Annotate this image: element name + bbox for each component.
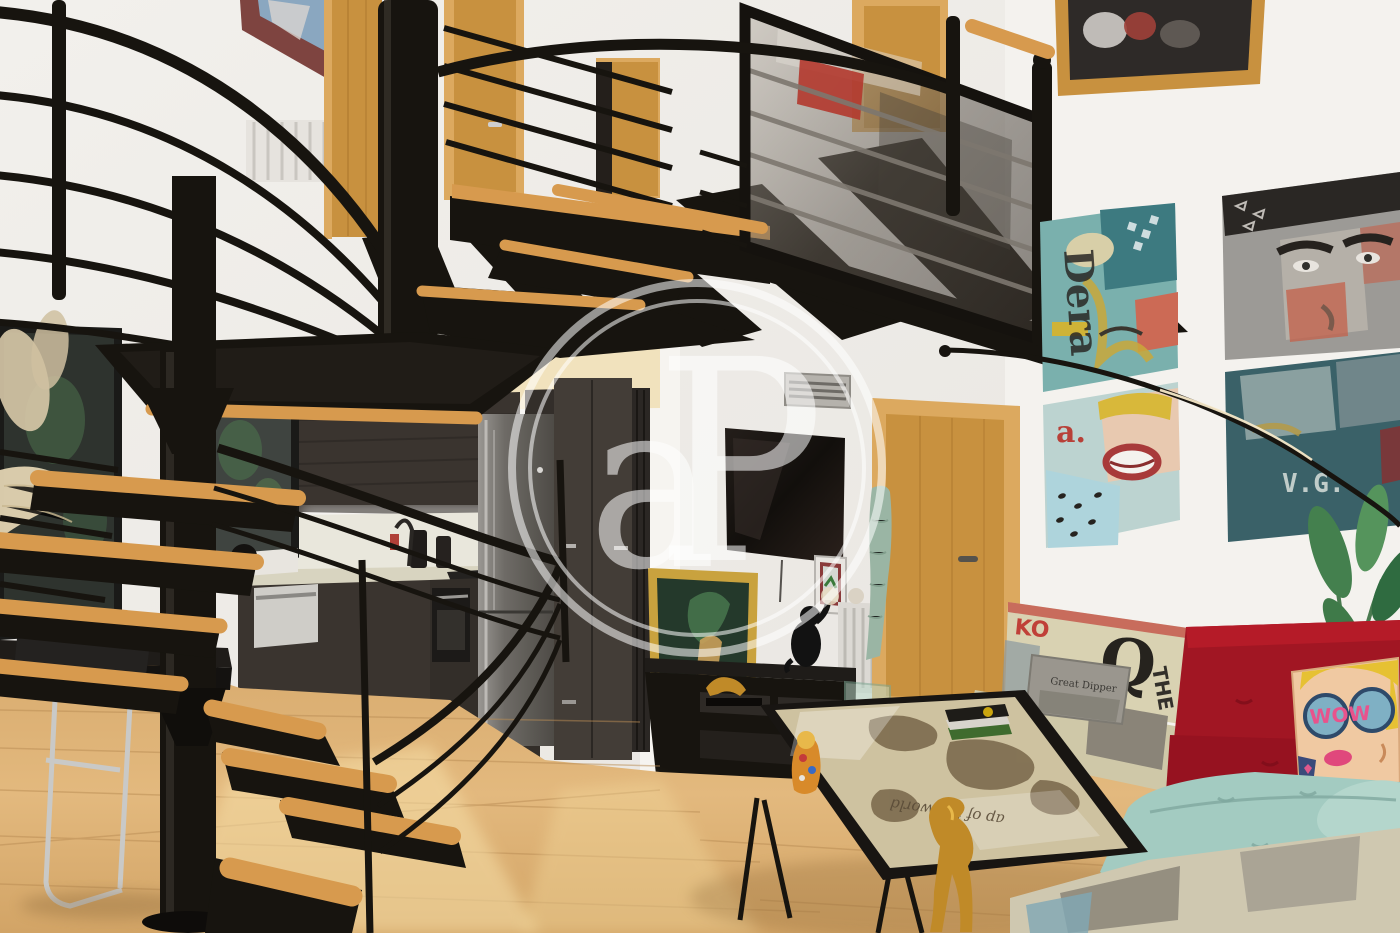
books [945, 704, 1012, 740]
console-device [706, 698, 762, 706]
railing-post-right [946, 16, 960, 216]
loft-interior-photo: Dera [0, 0, 1400, 933]
dishwasher [254, 584, 318, 648]
art-panel-3: a. [1043, 382, 1180, 548]
glass-sphere [848, 588, 864, 604]
sofa-letter-ko: KO [1013, 615, 1050, 643]
wow-pillow: WOW [1292, 658, 1400, 792]
art-panel4-letters: V.G. [1282, 469, 1345, 499]
wow-pillow-text: WOW [1309, 701, 1372, 729]
art-panel1-letters: Dera [1054, 247, 1108, 357]
entry-door [872, 398, 1020, 714]
art-panel-2 [1222, 172, 1400, 360]
door-handle [958, 556, 978, 562]
art-panel3-letter: a. [1056, 415, 1086, 450]
transom-window [1055, 0, 1265, 96]
railing-post-left [52, 0, 66, 300]
scene: Dera [0, 0, 1400, 933]
watermark-letter-p: P [655, 300, 825, 626]
